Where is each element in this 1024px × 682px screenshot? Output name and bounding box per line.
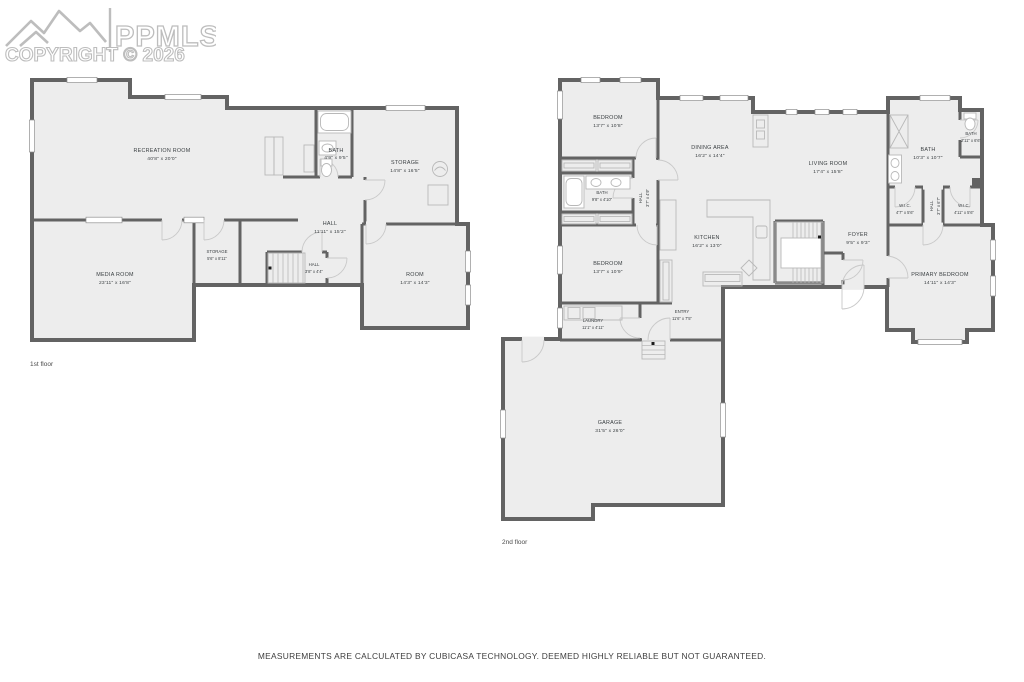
room-name-media: MEDIA ROOM <box>96 272 134 278</box>
room-dims-primary: 14'11" x 14'3" <box>924 280 956 286</box>
room-name-hall2: HALL <box>929 200 934 211</box>
window <box>557 246 562 274</box>
floor1-floor-area <box>32 80 468 340</box>
room-dims-bath3: 2'11" x 6'6" <box>961 138 981 143</box>
window <box>67 77 97 82</box>
window <box>386 105 425 110</box>
room-dims-dining: 16'2" x 14'4" <box>695 153 724 159</box>
window <box>990 240 995 260</box>
stair-start-marker <box>818 236 821 239</box>
floor-plan-1st: RECREATION ROOM 40'8" x 20'0" BATH 4'9" … <box>20 55 490 385</box>
room-dims-bath: 4'9" x 9'5" <box>324 155 348 161</box>
wall-chunk <box>972 178 982 187</box>
room-name-hall-big: HALL <box>323 221 338 227</box>
room-name-storage-big: STORAGE <box>391 160 419 166</box>
room-name-laundry: LAUNDRY <box>583 318 604 323</box>
room-dims-bath1: 9'8" x 4'10" <box>592 197 613 202</box>
room-dims-wic1: 4'7" x 5'6" <box>896 210 914 215</box>
room-name-bath3: BATH <box>965 131 976 136</box>
window <box>620 77 641 82</box>
room-dims-bedroom2: 13'7" x 10'9" <box>593 269 622 275</box>
room-name-garage: GARAGE <box>598 420 623 426</box>
room-dims-hall-small: 3'8" x 4'4" <box>305 269 323 274</box>
window <box>680 95 703 100</box>
room-dims-hall-big: 11'11" x 15'2" <box>314 229 346 235</box>
room-name-hall-small: HALL <box>309 262 320 267</box>
floor2-caption: 2nd floor <box>502 539 528 546</box>
toilet-icon <box>965 118 975 130</box>
room-name-bath1: BATH <box>596 190 607 195</box>
room-dims-bedroom1: 13'7" x 10'8" <box>593 123 622 129</box>
room-name-room: ROOM <box>406 272 424 278</box>
room-dims-foyer: 9'5" x 9'3" <box>846 240 870 246</box>
window <box>465 251 470 272</box>
room-name-entry: ENTRY <box>675 309 690 314</box>
window <box>720 95 748 100</box>
room-name-recreation: RECREATION ROOM <box>134 148 191 154</box>
window <box>465 285 470 305</box>
floor2-floor-area <box>503 80 993 519</box>
window <box>843 109 857 114</box>
room-dims-storage-small: 5'6" x 8'11" <box>207 256 227 261</box>
room-dims-hall2: 3'7" x 6'7" <box>936 197 941 215</box>
cased-opening <box>86 217 122 223</box>
room-dims-wic2: 4'11" x 5'6" <box>954 210 974 215</box>
room-dims-room: 14'3" x 14'3" <box>400 280 429 286</box>
room-name-bath: BATH <box>329 148 344 154</box>
window <box>557 308 562 328</box>
window <box>918 339 962 344</box>
floor1-caption: 1st floor <box>30 361 54 368</box>
room-name-primary: PRIMARY BEDROOM <box>911 272 969 278</box>
sink-vanity <box>889 155 902 183</box>
floor-plan-2nd: BEDROOM 13'7" x 10'8" DINING AREA 16'2" … <box>490 60 1010 560</box>
room-dims-entry: 11'6" x 7'5" <box>672 316 692 321</box>
window <box>165 94 201 99</box>
room-name-bath2: BATH <box>921 147 936 153</box>
room-dims-recreation: 40'8" x 20'0" <box>147 156 176 162</box>
sink-vanity <box>586 176 630 189</box>
window <box>720 403 725 437</box>
window <box>557 91 562 119</box>
room-dims-media: 23'11" x 16'8" <box>99 280 131 286</box>
room-dims-laundry: 11'1" x 4'11" <box>582 325 604 330</box>
window <box>581 77 600 82</box>
room-dims-living: 17'4" x 15'8" <box>813 169 842 175</box>
room-dims-storage-big: 14'8" x 16'5" <box>390 168 419 174</box>
room-dims-bath2: 10'3" x 10'7" <box>913 155 942 161</box>
mountain-icon <box>6 11 106 46</box>
room-name-dining: DINING AREA <box>691 145 729 151</box>
stair-start-marker <box>269 267 272 270</box>
room-name-storage-small: STORAGE <box>207 249 228 254</box>
cased-opening <box>184 217 204 223</box>
stairwell-void <box>781 238 821 268</box>
room-name-wic1: W.I.C. <box>899 203 911 208</box>
room-name-hall1: HALL <box>638 192 643 203</box>
window <box>920 95 950 100</box>
window <box>815 109 829 114</box>
window <box>786 109 797 114</box>
room-name-kitchen: KITCHEN <box>694 235 719 241</box>
toilet-icon <box>322 164 332 177</box>
room-dims-garage: 31'5" x 26'0" <box>595 428 624 434</box>
window <box>29 120 34 152</box>
room-dims-hall1: 3'7" x 4'9" <box>645 189 650 207</box>
room-name-bedroom2: BEDROOM <box>593 261 623 267</box>
stair-start-marker <box>652 342 655 345</box>
room-dims-kitchen: 16'2" x 13'0" <box>692 243 721 249</box>
room-name-bedroom1: BEDROOM <box>593 115 623 121</box>
room-name-wic2: W.I.C. <box>958 203 970 208</box>
window <box>500 410 505 438</box>
disclaimer-text: MEASUREMENTS ARE CALCULATED BY CUBICASA … <box>0 651 1024 661</box>
room-name-foyer: FOYER <box>848 232 868 238</box>
window <box>990 276 995 296</box>
room-name-living: LIVING ROOM <box>809 161 848 167</box>
